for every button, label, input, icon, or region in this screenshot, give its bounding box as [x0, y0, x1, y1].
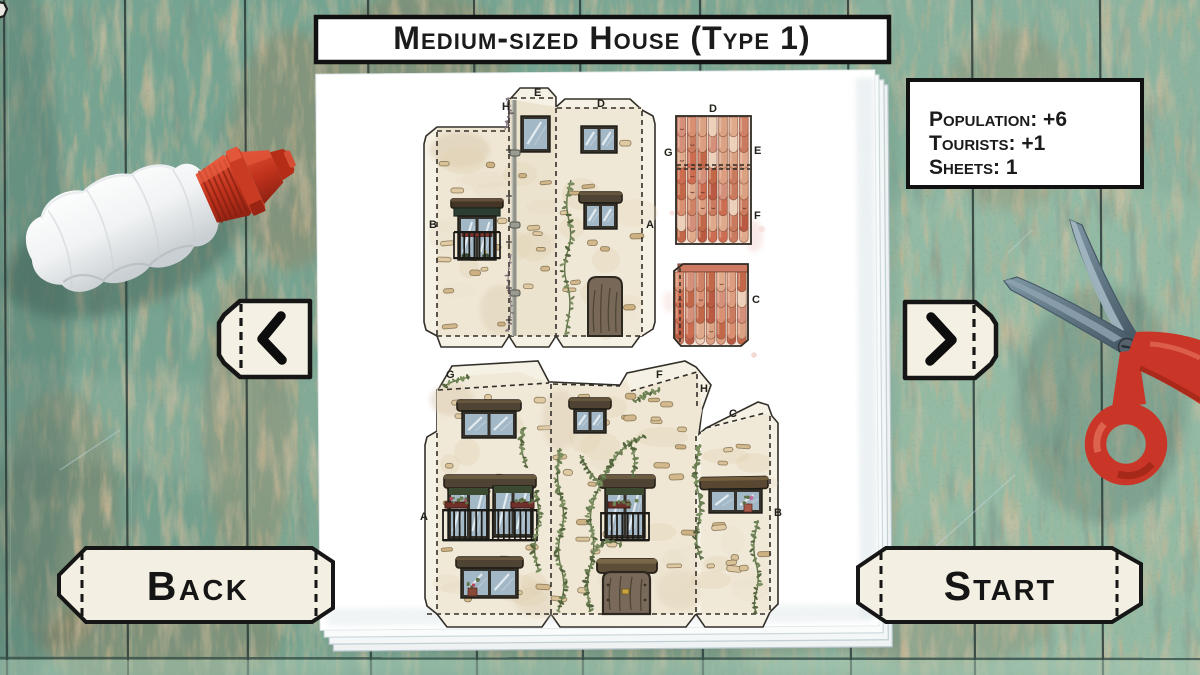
svg-text:G: G [446, 369, 455, 381]
svg-text:H: H [700, 383, 708, 395]
svg-text:A: A [420, 511, 428, 523]
svg-text:E: E [534, 87, 541, 99]
svg-text:F: F [754, 210, 761, 222]
svg-text:D: D [597, 98, 605, 110]
svg-text:Back: Back [147, 563, 249, 609]
svg-text:H: H [502, 101, 510, 113]
svg-text:B: B [429, 219, 437, 231]
svg-text:G: G [664, 147, 673, 159]
svg-text:A: A [646, 219, 654, 231]
svg-text:Tourists: +1: Tourists: +1 [929, 132, 1046, 155]
svg-text:C: C [752, 294, 760, 306]
svg-text:Sheets: 1: Sheets: 1 [929, 156, 1018, 179]
svg-text:E: E [754, 145, 761, 157]
svg-text:C: C [729, 408, 737, 420]
svg-text:B: B [774, 507, 782, 519]
svg-text:D: D [709, 103, 717, 115]
svg-text:Population: +6: Population: +6 [929, 108, 1067, 131]
svg-text:F: F [656, 369, 663, 381]
svg-text:Start: Start [944, 563, 1057, 609]
svg-text:Medium-sized House (Type 1): Medium-sized House (Type 1) [393, 20, 811, 56]
